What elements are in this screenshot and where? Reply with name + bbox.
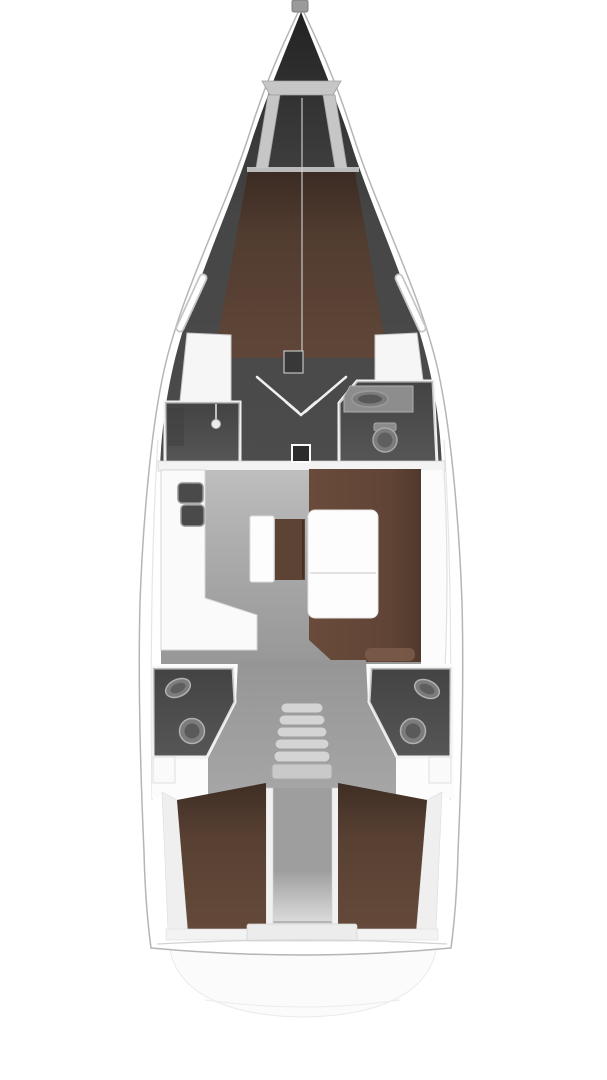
shower-head-icon <box>212 420 221 429</box>
locker-port <box>153 757 175 783</box>
aft-berth-starboard-shading <box>338 783 427 932</box>
forward-head <box>339 381 437 463</box>
dinette-table <box>308 510 378 618</box>
step-platform <box>272 764 332 779</box>
aft-cabin-starboard <box>338 783 442 932</box>
settee-cushion <box>365 648 415 661</box>
walkway-light <box>273 870 332 932</box>
toilet-bowl <box>406 724 421 739</box>
side-deck-starboard <box>421 470 447 668</box>
sink-basin <box>358 395 382 404</box>
berth-head-edge <box>247 167 359 172</box>
locker-starboard <box>429 757 451 783</box>
aft-cabin-port <box>162 783 266 932</box>
mast <box>292 445 310 462</box>
chart-locker-brown <box>275 519 305 580</box>
boat-floor-plan <box>0 0 607 1080</box>
door-post <box>284 351 303 373</box>
bow-anchor-roller <box>292 0 308 12</box>
toilet-bowl <box>378 433 393 448</box>
galley-sink-1 <box>178 483 203 503</box>
forward-shower <box>165 402 240 463</box>
aft-berth-port-shading <box>177 783 266 932</box>
boat-floor-plan-canvas <box>0 0 607 1080</box>
chart-seat-white <box>250 516 274 582</box>
anchor-locker-headboard <box>262 81 341 95</box>
transom-step <box>247 924 357 941</box>
chart-seat-island <box>250 516 305 582</box>
engine-walkway <box>266 788 339 934</box>
shower-shelf <box>168 408 184 446</box>
galley-sink-2 <box>181 505 204 526</box>
salon-dinette <box>308 469 427 662</box>
toilet-bowl <box>185 724 200 739</box>
walkway-wall-port <box>266 788 273 934</box>
walkway-wall-starboard <box>332 788 339 934</box>
